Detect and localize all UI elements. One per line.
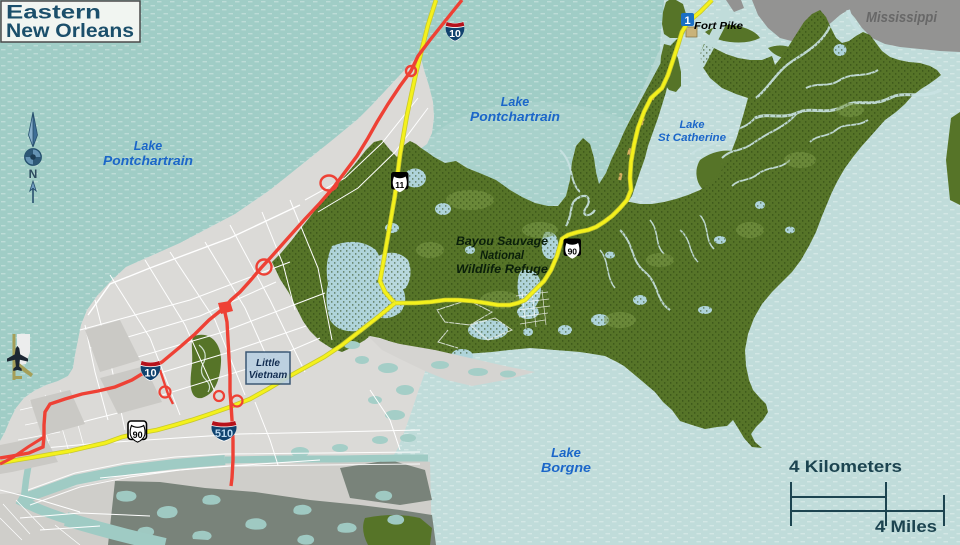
svg-text:10: 10: [449, 28, 461, 40]
svg-text:Pontchartrain: Pontchartrain: [470, 110, 560, 124]
svg-text:Lake: Lake: [679, 119, 704, 131]
svg-text:St Catherine: St Catherine: [658, 132, 726, 144]
svg-text:N: N: [29, 167, 38, 181]
svg-text:New Orleans: New Orleans: [6, 21, 134, 42]
svg-text:Fort Pike: Fort Pike: [694, 20, 743, 32]
svg-text:1: 1: [684, 15, 690, 27]
svg-text:Vietnam: Vietnam: [249, 370, 288, 381]
svg-text:10: 10: [144, 368, 156, 380]
svg-text:Lake: Lake: [501, 95, 530, 109]
svg-text:Borgne: Borgne: [541, 460, 591, 475]
svg-text:Lake: Lake: [551, 445, 581, 460]
svg-text:4 Kilometers: 4 Kilometers: [789, 457, 902, 476]
svg-text:Pontchartrain: Pontchartrain: [103, 154, 193, 168]
svg-text:Mississippi: Mississippi: [866, 10, 938, 26]
svg-text:Bayou Sauvage: Bayou Sauvage: [456, 234, 548, 248]
svg-text:90: 90: [133, 430, 143, 440]
svg-text:90: 90: [568, 247, 578, 257]
svg-text:11: 11: [395, 180, 404, 190]
svg-text:4 Miles: 4 Miles: [875, 517, 937, 536]
svg-text:Little: Little: [256, 358, 280, 369]
svg-text:Wildlife Refuge: Wildlife Refuge: [456, 262, 548, 276]
svg-text:Lake: Lake: [134, 139, 163, 153]
svg-text:510: 510: [215, 428, 233, 440]
svg-text:National: National: [480, 248, 525, 262]
